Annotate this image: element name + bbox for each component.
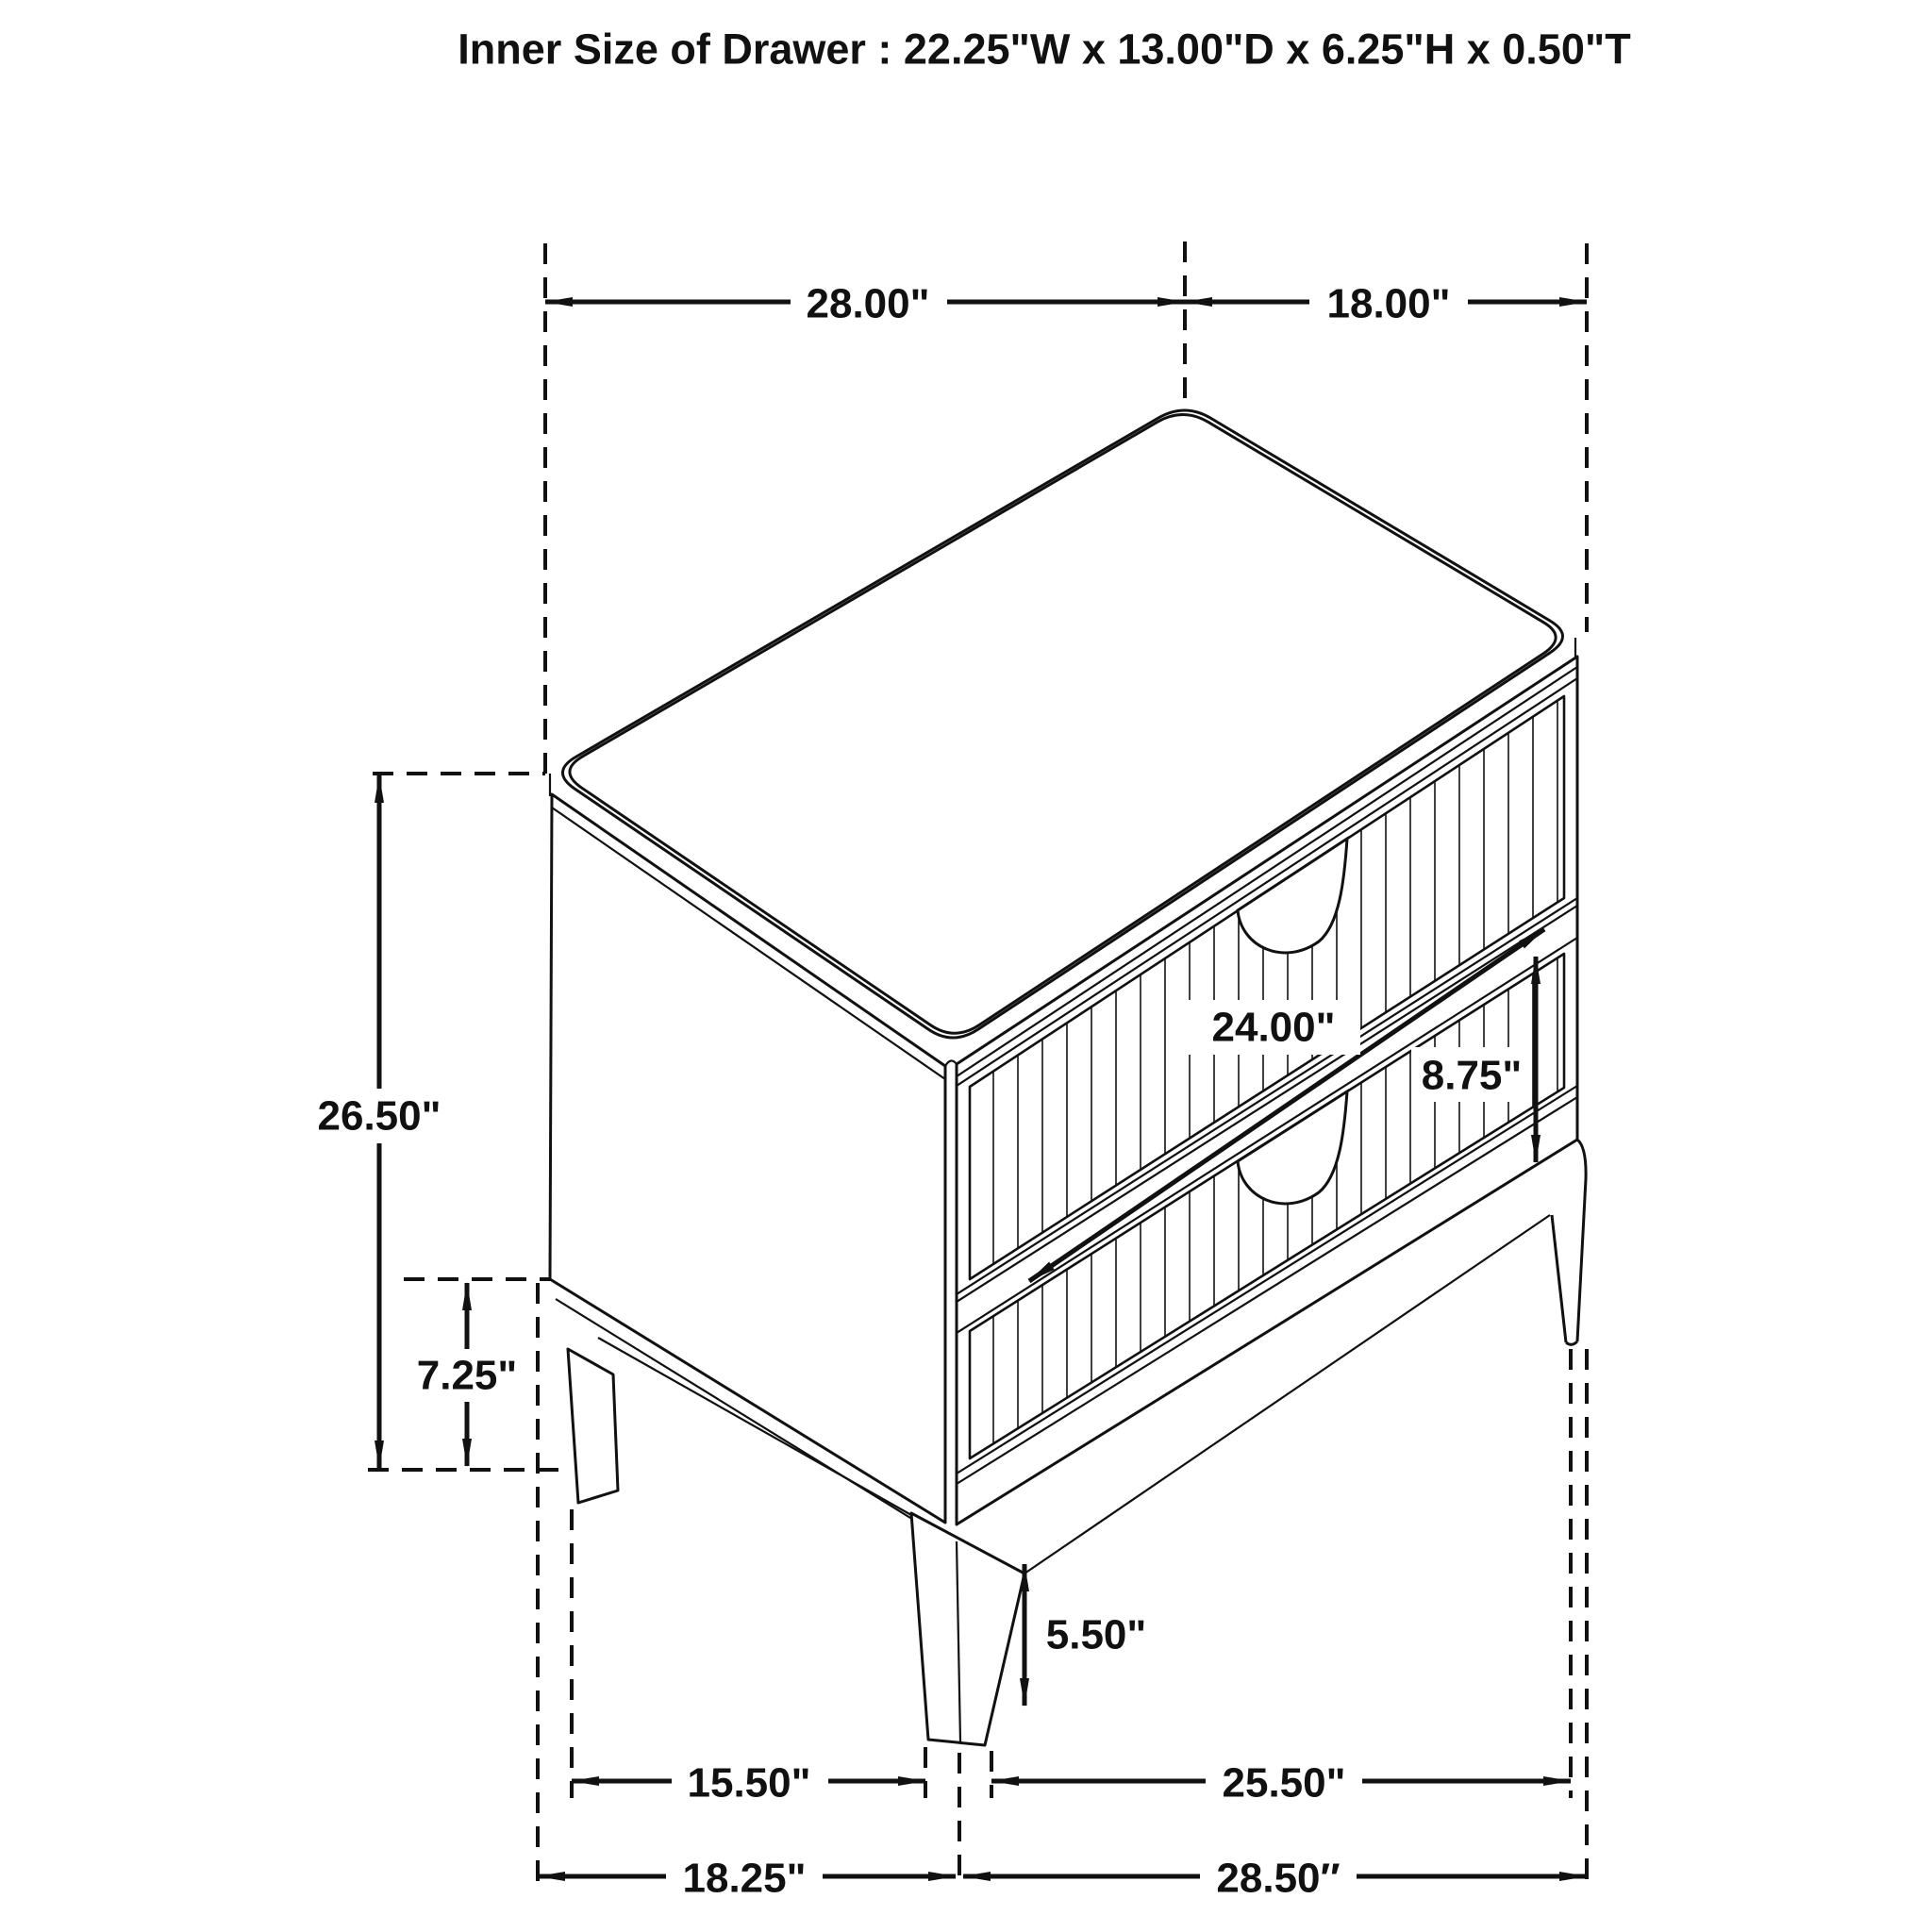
dim-leg-height-label: 5.50"	[1046, 1612, 1147, 1658]
dim-feet-span-inner-label: 15.50"	[688, 1760, 811, 1807]
dim-drawer-front-height-label: 8.75"	[1422, 1053, 1523, 1099]
dim-footprint-depth-label: 18.25"	[683, 1856, 807, 1902]
dim-base-clearance-label: 7.25"	[417, 1353, 518, 1399]
rear-left-leg	[568, 1349, 618, 1503]
dim-top-depth: 18.00"	[1185, 281, 1587, 327]
nightstand-dimension-diagram: Inner Size of Drawer : 22.25"W x 13.00"D…	[0, 0, 1932, 1932]
dim-overall-height-label: 26.50"	[318, 1093, 441, 1140]
dim-drawer-width-label: 24.00"	[1212, 1005, 1336, 1051]
page-title: Inner Size of Drawer : 22.25"W x 13.00"D…	[458, 25, 1630, 74]
dim-leg-height: 5.50"	[1024, 1564, 1146, 1706]
dim-footprint-width-label: 28.50″	[1216, 1856, 1340, 1902]
front-left-leg	[911, 1513, 1024, 1745]
dim-footprint-depth: 18.25"	[538, 1856, 956, 1902]
dim-base-clearance: 7.25"	[417, 1283, 518, 1466]
dim-feet-span-outer-label: 25.50"	[1223, 1760, 1346, 1807]
dim-top-width-label: 28.00"	[807, 281, 930, 327]
dim-top-depth-label: 18.00"	[1327, 281, 1451, 327]
dim-footprint-width: 28.50″	[963, 1856, 1587, 1902]
dim-feet-span-inner: 15.50"	[572, 1760, 925, 1807]
dim-feet-span-outer: 25.50"	[991, 1760, 1571, 1807]
dimension-drawing-page: Inner Size of Drawer : 22.25"W x 13.00"D…	[0, 0, 1932, 1932]
front-right-leg	[1552, 1140, 1586, 1344]
dim-top-width: 28.00"	[545, 281, 1185, 327]
